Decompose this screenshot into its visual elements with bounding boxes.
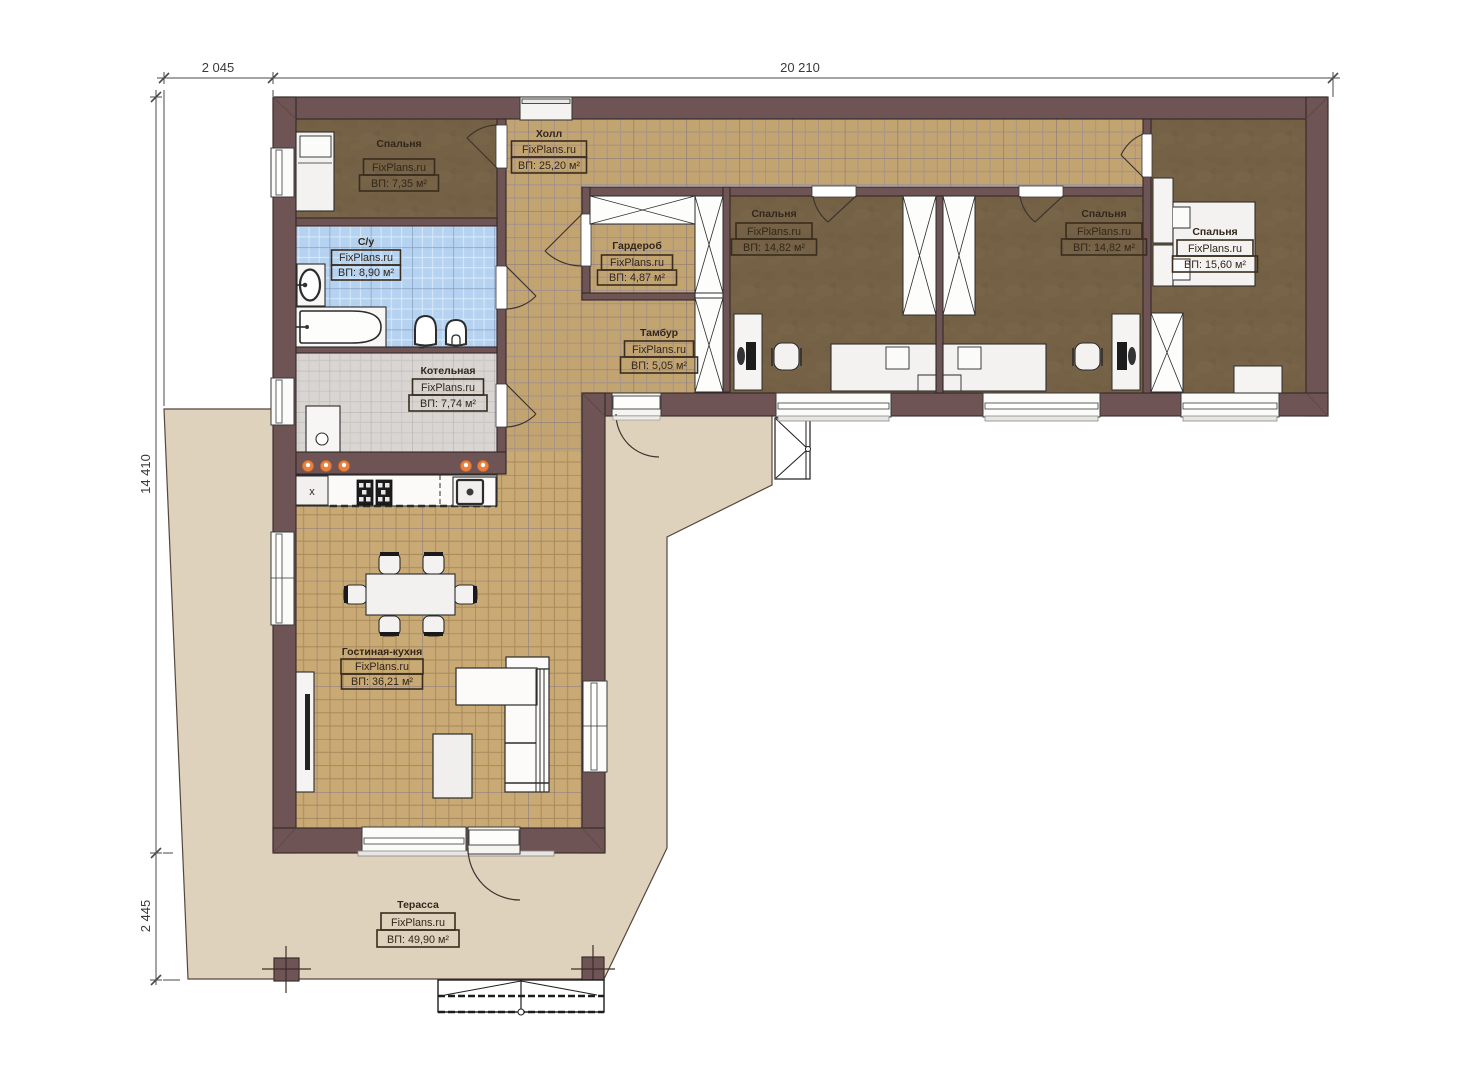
svg-text:ВП: 36,21 м²: ВП: 36,21 м² [351, 676, 413, 688]
svg-text:С/у: С/у [358, 236, 375, 248]
svg-text:Гостиная-кухня: Гостиная-кухня [342, 646, 422, 658]
svg-text:ВП: 8,90 м²: ВП: 8,90 м² [338, 267, 394, 279]
svg-text:20 210: 20 210 [780, 60, 820, 75]
svg-text:FixPlans.ru: FixPlans.ru [610, 257, 664, 269]
svg-text:x: x [309, 486, 315, 498]
svg-text:FixPlans.ru: FixPlans.ru [372, 162, 426, 174]
svg-text:ВП: 15,60 м²: ВП: 15,60 м² [1184, 259, 1246, 271]
svg-text:FixPlans.ru: FixPlans.ru [421, 382, 475, 394]
svg-text:2 045: 2 045 [202, 60, 235, 75]
svg-text:Спальня: Спальня [376, 138, 421, 150]
svg-text:Спальня: Спальня [751, 208, 796, 220]
svg-text:ВП: 49,90 м²: ВП: 49,90 м² [387, 934, 449, 946]
svg-text:FixPlans.ru: FixPlans.ru [339, 252, 393, 264]
svg-text:ВП: 25,20 м²: ВП: 25,20 м² [518, 160, 580, 172]
svg-text:Гардероб: Гардероб [612, 240, 662, 252]
svg-text:Спальня: Спальня [1192, 226, 1237, 238]
svg-text:Тамбур: Тамбур [640, 327, 678, 339]
svg-text:2 445: 2 445 [138, 900, 153, 933]
svg-text:FixPlans.ru: FixPlans.ru [1077, 226, 1131, 238]
svg-text:ВП: 7,35 м²: ВП: 7,35 м² [371, 178, 427, 190]
svg-text:FixPlans.ru: FixPlans.ru [1188, 243, 1242, 255]
svg-text:Котельная: Котельная [421, 365, 476, 377]
svg-text:FixPlans.ru: FixPlans.ru [355, 661, 409, 673]
svg-text:FixPlans.ru: FixPlans.ru [747, 226, 801, 238]
svg-text:FixPlans.ru: FixPlans.ru [391, 917, 445, 929]
svg-text:ВП: 7,74 м²: ВП: 7,74 м² [420, 398, 476, 410]
svg-text:14 410: 14 410 [138, 454, 153, 494]
svg-text:ВП: 5,05 м²: ВП: 5,05 м² [631, 360, 687, 372]
svg-text:Холл: Холл [536, 128, 562, 140]
svg-text:FixPlans.ru: FixPlans.ru [632, 344, 686, 356]
svg-text:ВП: 14,82 м²: ВП: 14,82 м² [1073, 242, 1135, 254]
svg-text:Терасса: Терасса [397, 899, 439, 911]
svg-text:FixPlans.ru: FixPlans.ru [522, 144, 576, 156]
svg-text:ВП: 14,82 м²: ВП: 14,82 м² [743, 242, 805, 254]
svg-text:ВП: 4,87 м²: ВП: 4,87 м² [609, 272, 665, 284]
svg-text:Спальня: Спальня [1081, 208, 1126, 220]
